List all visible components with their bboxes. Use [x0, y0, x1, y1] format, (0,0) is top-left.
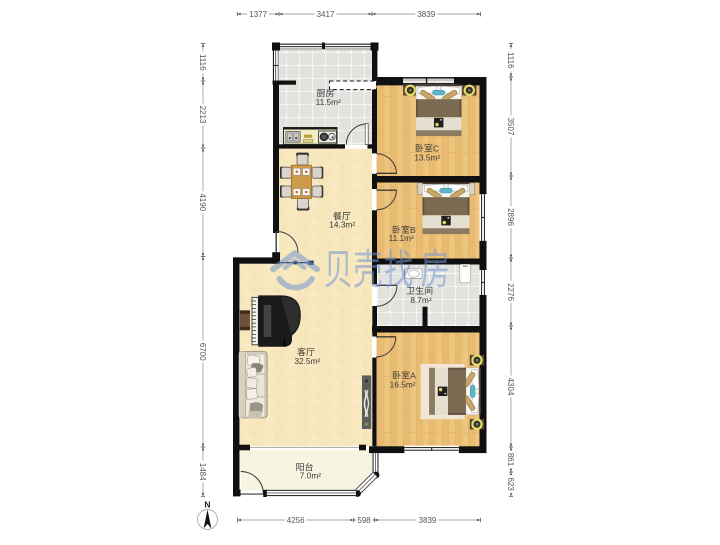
svg-text:8.7m²: 8.7m²	[410, 295, 431, 305]
svg-text:3507: 3507	[506, 118, 515, 136]
svg-text:13.5m²: 13.5m²	[414, 152, 440, 162]
svg-text:598: 598	[357, 516, 371, 525]
svg-text:2213: 2213	[198, 106, 207, 124]
svg-text:2896: 2896	[506, 208, 515, 226]
svg-text:4256: 4256	[287, 516, 305, 525]
svg-text:11.5m²: 11.5m²	[316, 97, 341, 107]
svg-text:1116: 1116	[198, 54, 207, 71]
svg-text:1116: 1116	[506, 52, 515, 69]
svg-text:1484: 1484	[198, 463, 207, 481]
svg-text:3839: 3839	[417, 10, 435, 19]
svg-text:623: 623	[506, 477, 515, 491]
svg-text:3417: 3417	[317, 10, 335, 19]
svg-text:861: 861	[506, 453, 515, 467]
svg-text:2276: 2276	[506, 283, 515, 301]
svg-text:N: N	[204, 500, 210, 510]
svg-text:6700: 6700	[198, 343, 207, 361]
svg-text:11.1m²: 11.1m²	[389, 233, 414, 243]
svg-text:4190: 4190	[198, 193, 207, 211]
svg-text:3839: 3839	[419, 516, 437, 525]
svg-text:32.5m²: 32.5m²	[294, 356, 320, 366]
svg-text:16.5m²: 16.5m²	[390, 379, 416, 389]
svg-text:14.3m²: 14.3m²	[329, 220, 355, 230]
svg-text:4304: 4304	[506, 378, 515, 396]
svg-text:1377: 1377	[249, 10, 267, 19]
svg-text:7.0m²: 7.0m²	[300, 471, 321, 481]
